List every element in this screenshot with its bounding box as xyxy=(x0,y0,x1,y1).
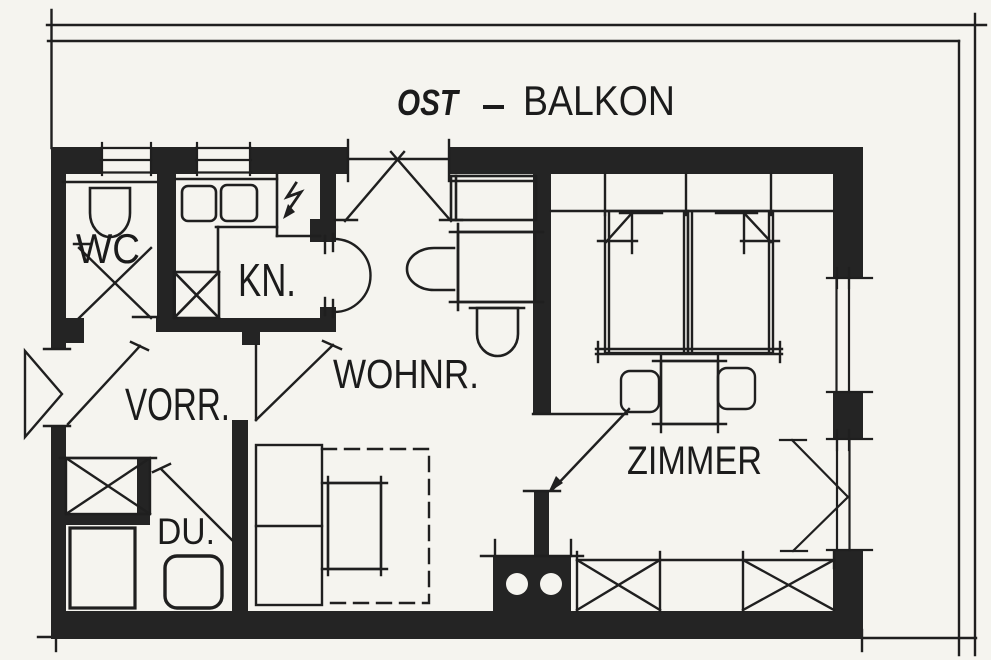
svg-text:OST: OST xyxy=(397,82,461,122)
svg-text:WOHNR.: WOHNR. xyxy=(333,351,479,397)
svg-text:DU.: DU. xyxy=(157,512,215,553)
svg-text:BALKON: BALKON xyxy=(523,78,675,124)
svg-text:WC: WC xyxy=(76,225,140,272)
svg-text:VORR.: VORR. xyxy=(125,380,230,430)
svg-text:ZIMMER: ZIMMER xyxy=(627,437,762,482)
svg-text:KN.: KN. xyxy=(238,254,296,306)
